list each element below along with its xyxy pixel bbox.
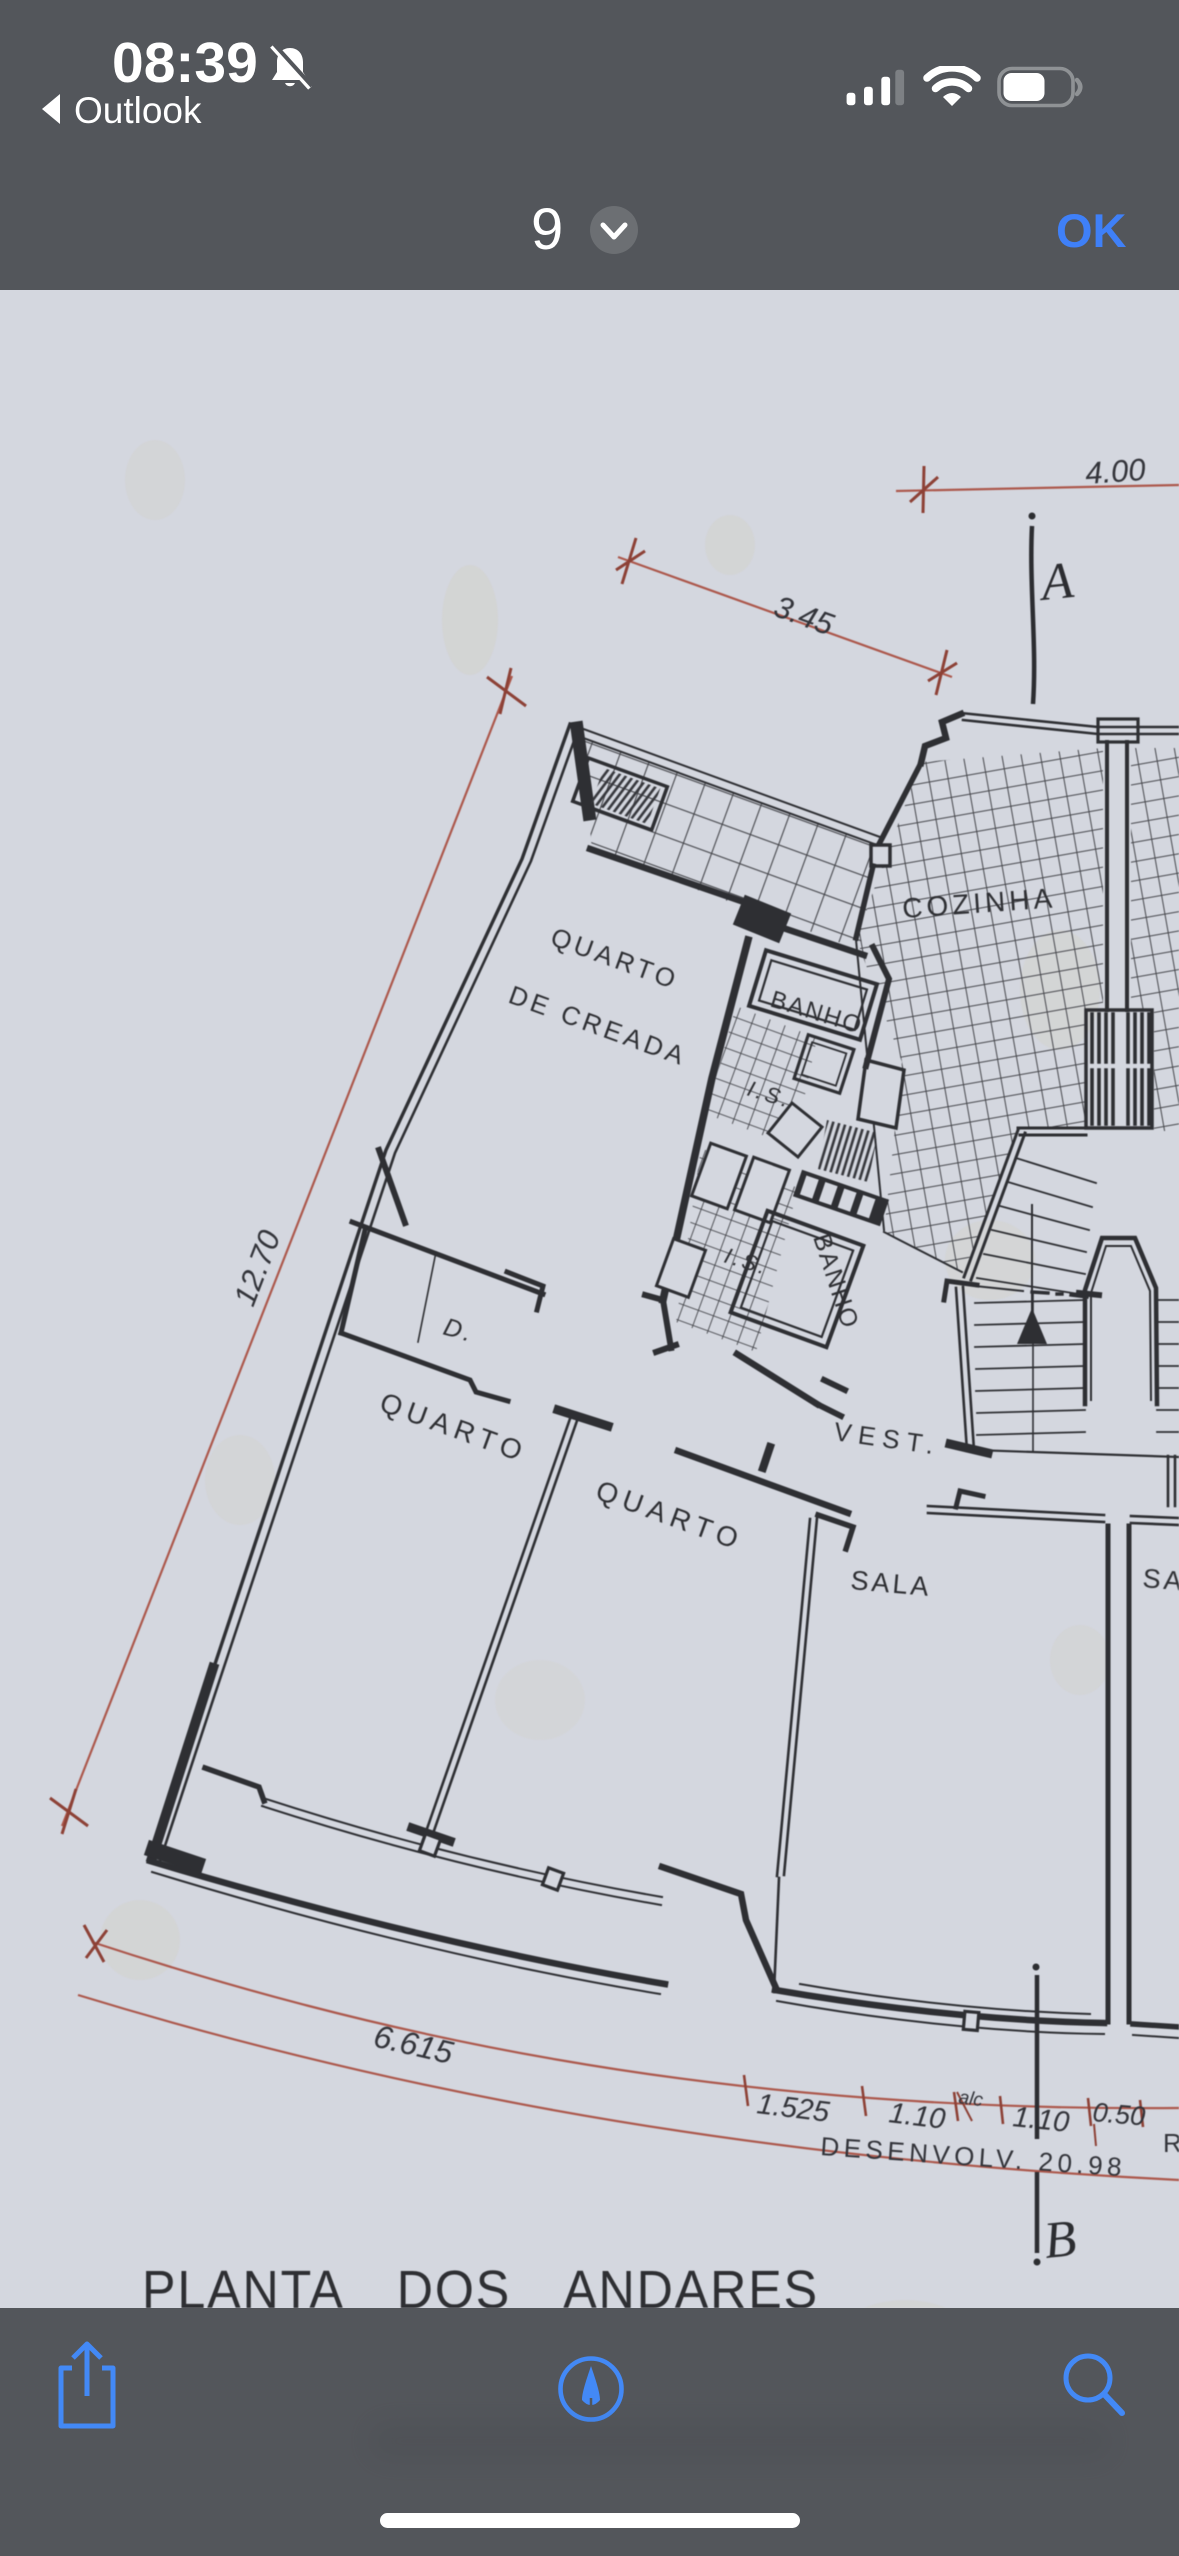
svg-text:A: A <box>1035 552 1076 612</box>
svg-text:D.: D. <box>440 1313 478 1348</box>
svg-text:DESENVOLV. 20.98: DESENVOLV. 20.98 <box>820 2131 1127 2182</box>
svg-text:PLANTA DOS ANDARES: PLANTA DOS ANDARES <box>142 2260 819 2308</box>
svg-text:alc: alc <box>957 2087 984 2111</box>
svg-text:1.10: 1.10 <box>1011 2101 1070 2139</box>
svg-text:SALA: SALA <box>849 1565 932 1602</box>
svg-text:R: R <box>1163 2128 1179 2158</box>
svg-text:QUARTO: QUARTO <box>592 1475 748 1557</box>
svg-text:12.70: 12.70 <box>227 1226 287 1311</box>
svg-text:6.615: 6.615 <box>370 2018 456 2071</box>
svg-text:4.00: 4.00 <box>1084 452 1147 491</box>
svg-text:VEST.: VEST. <box>832 1416 942 1461</box>
svg-text:BANHO: BANHO <box>807 1230 864 1333</box>
svg-text:DE CREADA: DE CREADA <box>505 979 692 1071</box>
svg-text:QUARTO: QUARTO <box>547 921 683 995</box>
svg-text:SALA: SALA <box>1141 1563 1179 1600</box>
svg-text:B: B <box>1041 2210 1079 2270</box>
svg-text:3.45: 3.45 <box>770 589 839 643</box>
svg-text:0.50: 0.50 <box>1091 2097 1146 2131</box>
svg-text:1.10: 1.10 <box>887 2097 947 2136</box>
